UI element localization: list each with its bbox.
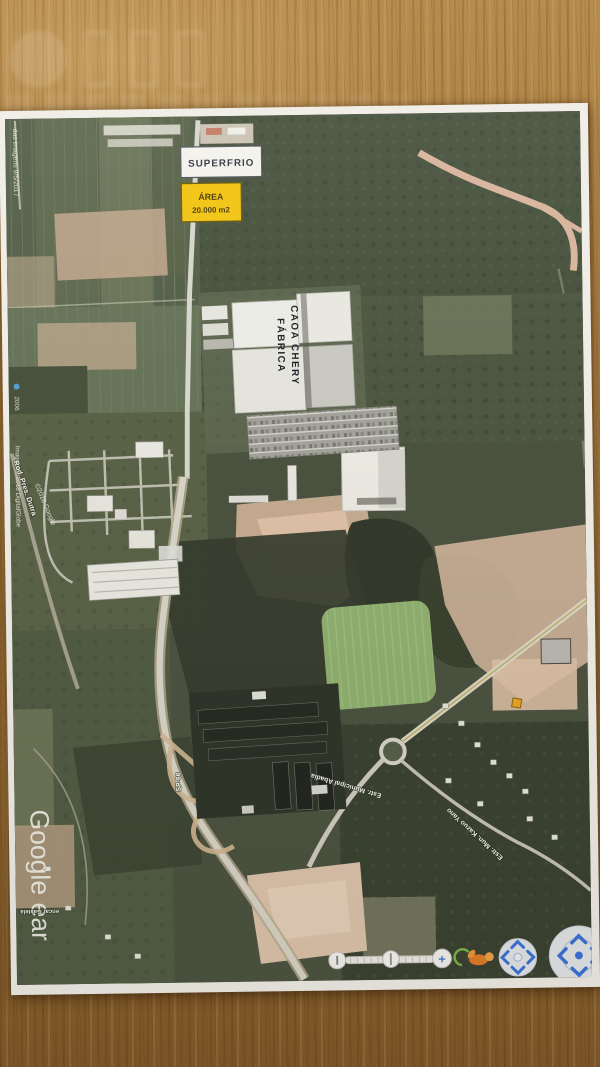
superfrio-label: SUPERFRIO — [188, 158, 254, 170]
area-label-line1: ÁREA — [198, 192, 224, 202]
yellow-marker-icon — [512, 698, 522, 708]
photo-of-printed-map: { "map_annotations": { "superfrio_label"… — [0, 0, 600, 1067]
zoom-in-glyph: + — [438, 951, 446, 966]
google-earth-watermark: Google ear — [24, 809, 56, 941]
warehouse-complex — [87, 559, 180, 600]
area-box — [181, 183, 242, 222]
pan-control-small[interactable] — [499, 938, 537, 976]
imagery-date-label: das imagens 9/5/2017 — [11, 129, 19, 197]
gray-building — [541, 639, 571, 664]
satellite-map: SUPERFRIO ÁREA 20.000 m2 CAOA CHERY FÁBR… — [5, 111, 592, 985]
year-marker: 2006 — [13, 396, 20, 411]
white-warehouse — [341, 447, 405, 511]
svg-text:FÁBRICA: FÁBRICA — [275, 318, 288, 373]
gastela-label: encar Gastela — [20, 908, 59, 915]
printed-page: SUPERFRIO ÁREA 20.000 m2 CAOA CHERY FÁBR… — [0, 103, 600, 995]
svg-text:CAOA CHERY: CAOA CHERY — [288, 305, 300, 385]
small-facility — [200, 123, 253, 143]
sp66-label: SP-66 — [175, 772, 182, 791]
area-label-line2: 20.000 m2 — [192, 205, 230, 215]
dark-industrial-complex — [189, 683, 347, 819]
